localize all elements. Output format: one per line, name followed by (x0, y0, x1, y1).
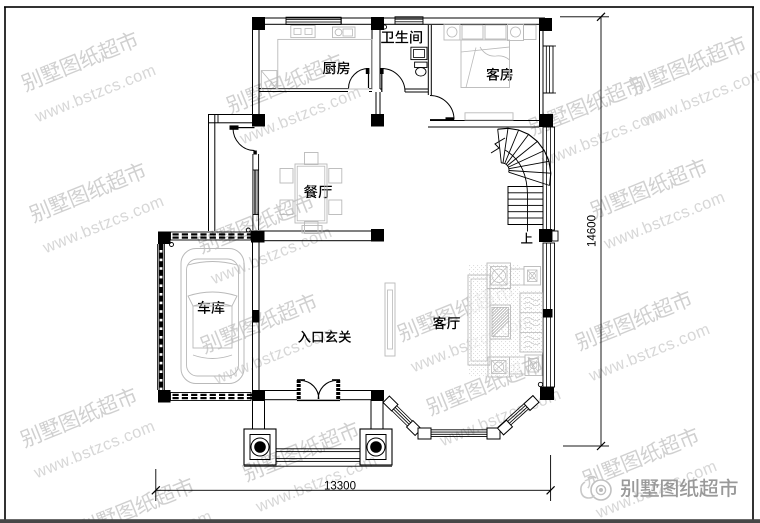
svg-text:14600: 14600 (587, 215, 599, 247)
svg-text:13300: 13300 (324, 481, 356, 493)
